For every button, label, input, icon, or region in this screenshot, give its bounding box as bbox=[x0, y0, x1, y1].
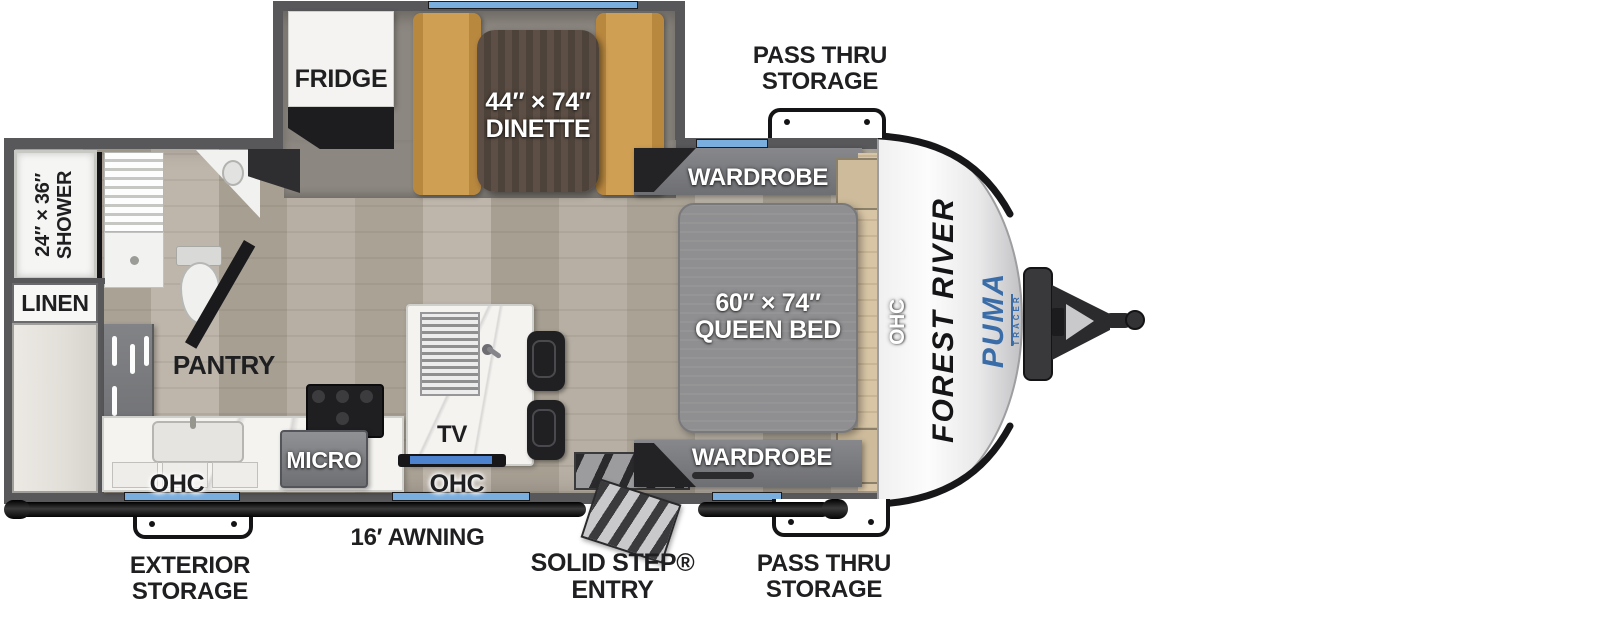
exterior-storage-label: EXTERIOR STORAGE bbox=[115, 550, 265, 608]
shower-surround bbox=[104, 152, 164, 232]
dinette-label: 44″ × 74″ DINETTE bbox=[458, 86, 618, 146]
pass-thru-bottom-line2: STORAGE bbox=[766, 577, 882, 603]
burner-4 bbox=[336, 412, 349, 425]
awning-rail-right bbox=[698, 502, 830, 517]
awning-cap-left bbox=[4, 500, 30, 519]
shower-name: SHOWER bbox=[56, 171, 78, 259]
ohc-left-label: OHC bbox=[146, 470, 208, 498]
bath-sink bbox=[222, 160, 244, 186]
latch-dot bbox=[868, 519, 874, 525]
queen-bed-name: QUEEN BED bbox=[695, 317, 841, 344]
latch-dot bbox=[149, 521, 155, 527]
latch-dot bbox=[784, 119, 790, 125]
tv-screen bbox=[410, 456, 492, 464]
slide-out-window bbox=[428, 1, 638, 9]
floorplan-canvas: FRIDGE 44″ × 74″ DINETTE 24″ × 36″ SHOWE… bbox=[0, 0, 1600, 619]
pantry-handle-4 bbox=[112, 386, 117, 416]
chair-1-seat bbox=[532, 340, 556, 378]
ohc-mid-label: OHC bbox=[426, 470, 488, 498]
kitchen-sink bbox=[152, 421, 244, 463]
micro-label: MICRO bbox=[282, 446, 366, 474]
dinette-name: DINETTE bbox=[486, 116, 591, 143]
pantry-handle-2 bbox=[130, 344, 135, 374]
wardrobe-top-label: WARDROBE bbox=[672, 164, 844, 192]
burner-2 bbox=[336, 390, 349, 403]
hitch-icon bbox=[1024, 268, 1144, 380]
latch-dot bbox=[864, 119, 870, 125]
vanity-knob bbox=[130, 256, 139, 265]
wardrobe-bottom-label: WARDROBE bbox=[676, 445, 848, 471]
pass-thru-bottom-line1: PASS THRU bbox=[757, 551, 891, 577]
dinette-size: 44″ × 74″ bbox=[485, 89, 590, 116]
awning-label: 16′ AWNING bbox=[340, 524, 495, 552]
bedroom-window-top bbox=[696, 139, 768, 148]
puma-logo-text: PUMA bbox=[978, 272, 1010, 368]
forest-river-logo: FOREST RIVER bbox=[926, 160, 962, 480]
ohc-front-label: OHC bbox=[886, 282, 910, 362]
latch-dot bbox=[231, 521, 237, 527]
pass-thru-top-line2: STORAGE bbox=[762, 69, 878, 95]
pass-thru-bottom-label: PASS THRU STORAGE bbox=[745, 548, 903, 606]
chair-2-seat bbox=[532, 409, 556, 447]
entry-label: SOLID STEP® ENTRY bbox=[490, 562, 735, 592]
wardrobe-handle bbox=[692, 472, 754, 479]
fridge-label: FRIDGE bbox=[290, 64, 392, 94]
exterior-storage-line2: STORAGE bbox=[132, 579, 248, 605]
burner-3 bbox=[360, 390, 373, 403]
pantry-handle-3 bbox=[144, 336, 149, 366]
pantry-label: PANTRY bbox=[166, 349, 282, 381]
pass-thru-top-label: PASS THRU STORAGE bbox=[745, 40, 895, 98]
chair-2 bbox=[527, 400, 565, 460]
exterior-storage-door bbox=[133, 515, 253, 539]
exterior-storage-line1: EXTERIOR bbox=[130, 553, 250, 579]
shower-glass-panel bbox=[97, 152, 102, 279]
queen-bed-size: 60″ × 74″ bbox=[715, 290, 820, 317]
shower-label: 24″ × 36″ SHOWER bbox=[32, 171, 80, 259]
pantry-handle-1 bbox=[112, 336, 117, 366]
latch-dot bbox=[788, 519, 794, 525]
linen-label: LINEN bbox=[12, 285, 98, 321]
queen-bed-label: 60″ × 74″ QUEEN BED bbox=[686, 285, 850, 349]
island-sink-cover bbox=[420, 312, 480, 396]
rear-storage-cabinet bbox=[12, 323, 98, 493]
chair-1 bbox=[527, 331, 565, 391]
puma-logo: PUMA TRACER bbox=[978, 250, 1022, 390]
burner-1 bbox=[312, 390, 325, 403]
pass-thru-top-door bbox=[768, 108, 886, 138]
shower-size: 24″ × 36″ bbox=[34, 173, 56, 257]
counter-drawer-3 bbox=[212, 462, 258, 488]
kitchen-faucet bbox=[190, 416, 196, 429]
awning-rail-left bbox=[8, 502, 586, 517]
tv-label: TV bbox=[428, 422, 476, 448]
puma-logo-subtext: TRACER bbox=[1011, 294, 1022, 345]
pass-thru-top-line1: PASS THRU bbox=[753, 43, 887, 69]
awning-cap-right bbox=[822, 499, 848, 519]
shower-label-wrap: 24″ × 36″ SHOWER bbox=[14, 150, 97, 280]
